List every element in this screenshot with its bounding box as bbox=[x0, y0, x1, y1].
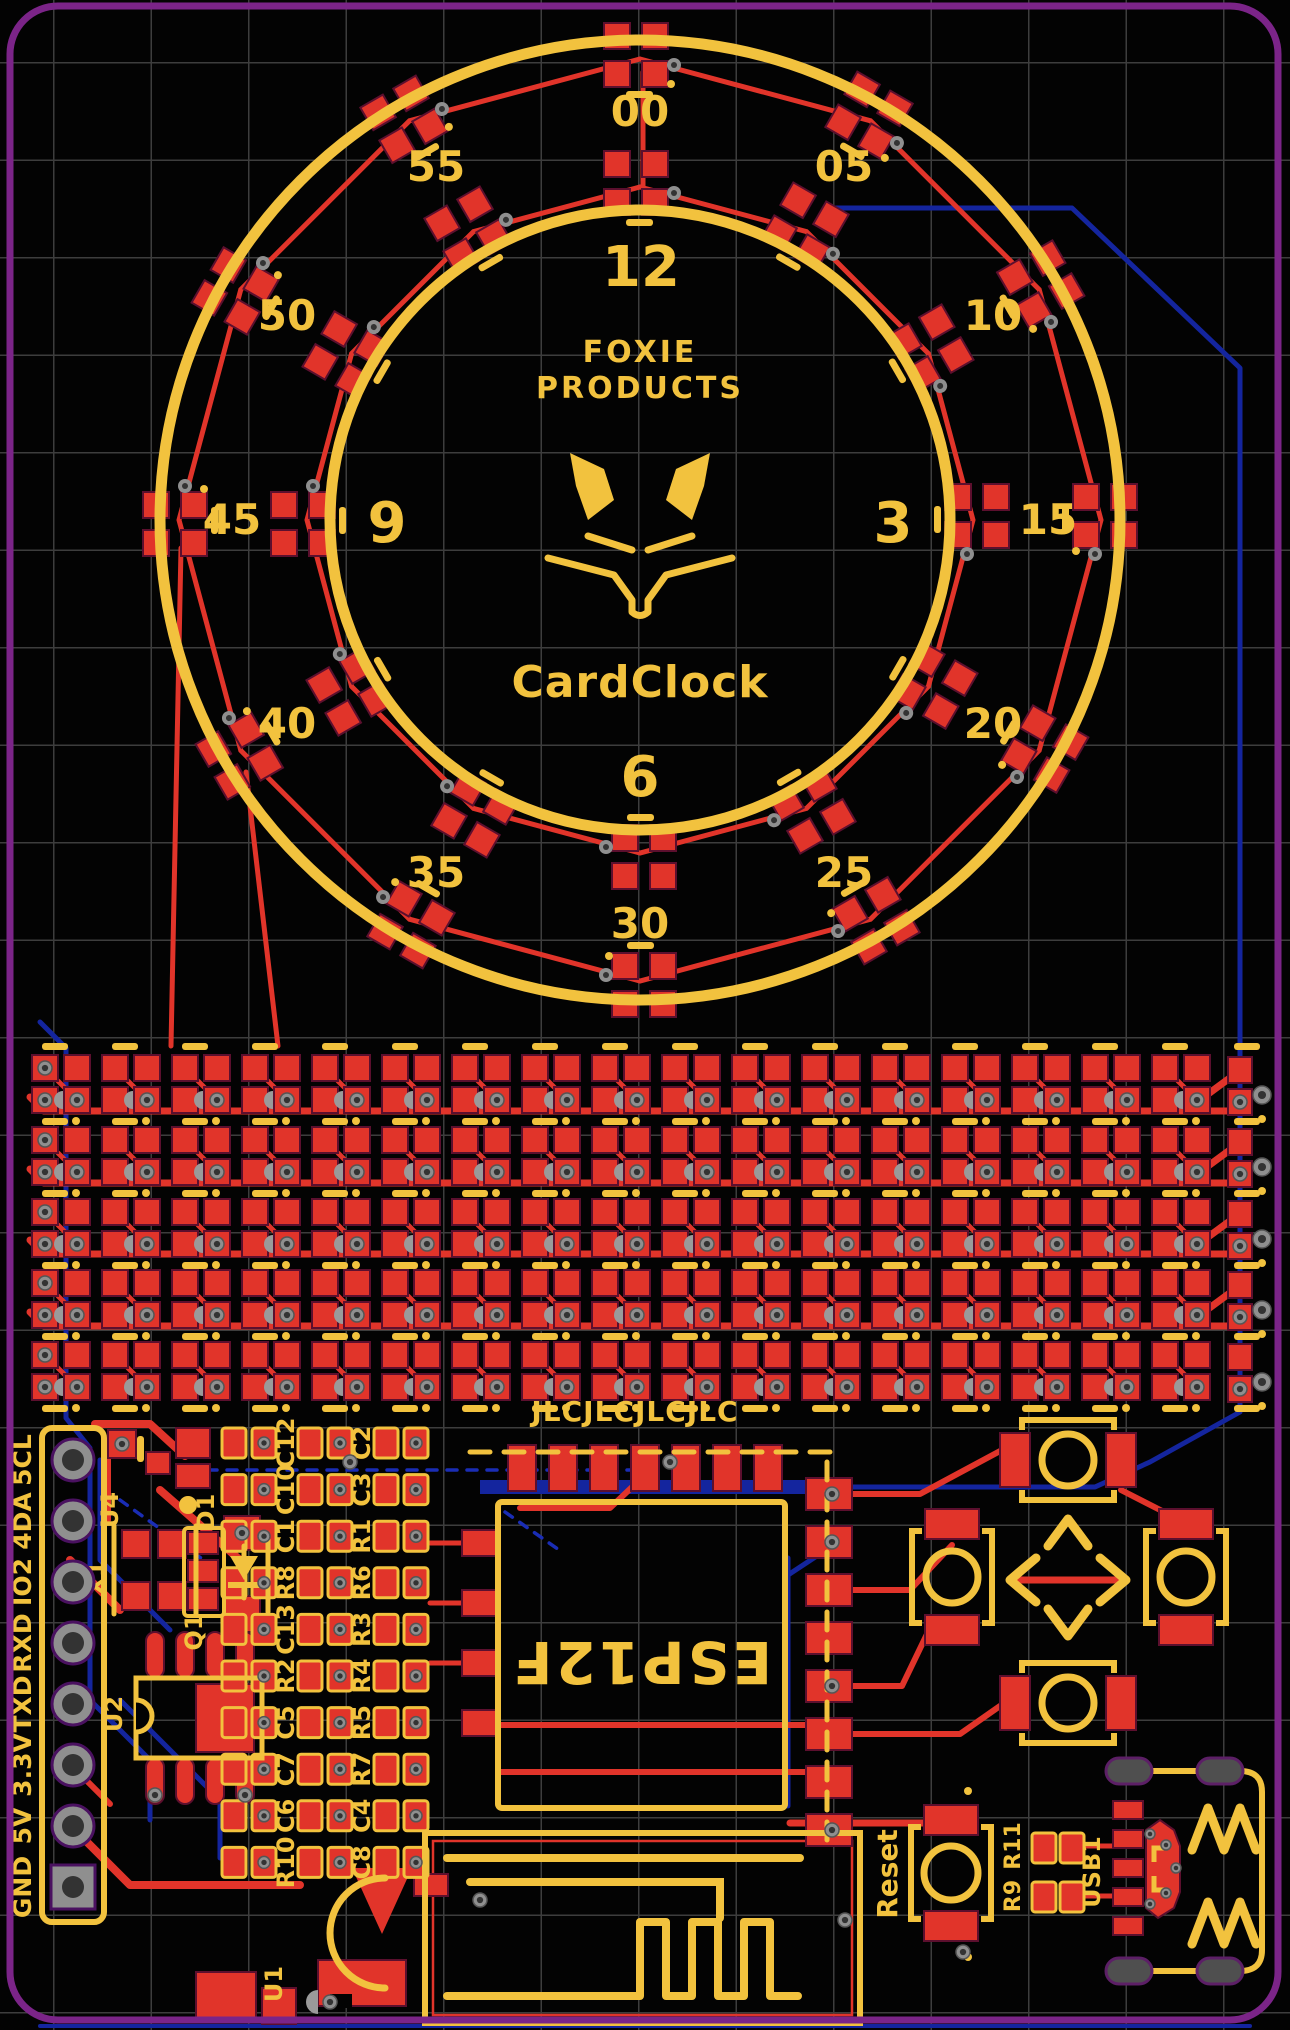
smd-pad bbox=[872, 1127, 898, 1153]
via-hole bbox=[984, 1312, 990, 1318]
smd-pad bbox=[382, 1127, 408, 1153]
usb-pin-pad bbox=[1113, 1917, 1143, 1935]
led-pad bbox=[983, 484, 1009, 510]
smd-pad bbox=[764, 1270, 790, 1296]
silk-dot bbox=[1052, 1117, 1060, 1125]
smd-pad bbox=[158, 1530, 186, 1558]
led-pad bbox=[247, 745, 283, 781]
antenna-line2 bbox=[470, 1882, 720, 1918]
smd-pad bbox=[452, 1342, 478, 1368]
silk-dash bbox=[392, 1262, 418, 1269]
minute-label-15: 15 bbox=[1019, 495, 1077, 544]
smd-pad bbox=[274, 1055, 300, 1081]
smd-pad bbox=[662, 1055, 688, 1081]
smd-pad bbox=[834, 1055, 860, 1081]
minute-label-30: 30 bbox=[611, 899, 669, 948]
silk-dash bbox=[42, 1043, 68, 1050]
smd-pad bbox=[172, 1127, 198, 1153]
via-hole bbox=[337, 1860, 342, 1865]
passive-pad bbox=[222, 1428, 246, 1458]
silk-dash bbox=[462, 1190, 488, 1197]
silk-dash bbox=[882, 1118, 908, 1125]
pcb-canvas: 12 3 6 9 00 05 10 15 20 25 30 35 40 45 5… bbox=[0, 0, 1290, 2030]
silk-dash bbox=[952, 1190, 978, 1197]
via-hole bbox=[829, 1491, 835, 1497]
silk-dash bbox=[112, 1118, 138, 1125]
smd-pad bbox=[1152, 1342, 1178, 1368]
silk-dash bbox=[42, 1405, 68, 1412]
smd-pad bbox=[1184, 1127, 1210, 1153]
via-hole bbox=[261, 1813, 266, 1818]
button-bracket bbox=[1022, 1490, 1114, 1500]
silk-dot bbox=[352, 1189, 360, 1197]
silk-dash bbox=[182, 1333, 208, 1340]
smd-pad bbox=[64, 1342, 90, 1368]
via-hole bbox=[603, 844, 609, 850]
smd-pad bbox=[1228, 1344, 1252, 1370]
led-pad bbox=[650, 863, 676, 889]
via-hole bbox=[347, 1459, 353, 1465]
usb-mount-hole bbox=[1106, 1958, 1152, 1984]
smd-pad bbox=[662, 1342, 688, 1368]
led-pad bbox=[780, 182, 816, 218]
silk-dot bbox=[282, 1332, 290, 1340]
silk-dash bbox=[1092, 1333, 1118, 1340]
led-pad bbox=[325, 700, 361, 736]
via-hole bbox=[1054, 1169, 1060, 1175]
silk-dot bbox=[492, 1189, 500, 1197]
silk-dash bbox=[602, 1190, 628, 1197]
smd-pad bbox=[102, 1270, 128, 1296]
smd-pad bbox=[1228, 1201, 1252, 1227]
passive-label: C12 bbox=[272, 1417, 300, 1468]
silk-dash bbox=[1022, 1043, 1048, 1050]
usb-art-upper bbox=[1192, 1808, 1256, 1850]
silk-dash bbox=[672, 1333, 698, 1340]
silk-dash bbox=[42, 1118, 68, 1125]
silk-dot bbox=[492, 1261, 500, 1269]
smd-pad bbox=[242, 1342, 268, 1368]
smd-pad bbox=[802, 1127, 828, 1153]
smd-pad bbox=[1082, 1270, 1108, 1296]
smd-pad bbox=[382, 1055, 408, 1081]
via-hole bbox=[1237, 1386, 1243, 1392]
passive-pad bbox=[298, 1521, 322, 1551]
silk-dot bbox=[142, 1261, 150, 1269]
silk-dot bbox=[1052, 1404, 1060, 1412]
silk-dot bbox=[422, 1332, 430, 1340]
silk-dash bbox=[392, 1190, 418, 1197]
button-bracket bbox=[1146, 1531, 1156, 1623]
smd-pad bbox=[176, 1428, 210, 1458]
via-hole bbox=[327, 1999, 333, 2005]
smd-pad bbox=[172, 1270, 198, 1296]
passive-pad bbox=[298, 1708, 322, 1738]
smd-pad bbox=[732, 1342, 758, 1368]
silk-dash bbox=[1092, 1262, 1118, 1269]
silk-dash bbox=[322, 1190, 348, 1197]
smd-pad bbox=[904, 1342, 930, 1368]
smd-pad bbox=[1152, 1055, 1178, 1081]
smd-pad bbox=[122, 1582, 150, 1610]
smd-pad bbox=[274, 1342, 300, 1368]
via-hole bbox=[634, 1097, 640, 1103]
smd-pad bbox=[414, 1055, 440, 1081]
smd-pad bbox=[974, 1199, 1000, 1225]
via-hole bbox=[214, 1312, 220, 1318]
smd-pad bbox=[452, 1199, 478, 1225]
silk-dot bbox=[982, 1261, 990, 1269]
via-hole bbox=[310, 483, 316, 489]
header-hole bbox=[62, 1632, 84, 1654]
via-hole bbox=[413, 1813, 418, 1818]
passive-pad bbox=[374, 1568, 398, 1598]
led-pad bbox=[321, 311, 357, 347]
via-hole bbox=[42, 1384, 48, 1390]
passive-label: C13 bbox=[272, 1604, 300, 1655]
smd-pad bbox=[1114, 1127, 1140, 1153]
silk-dot bbox=[72, 1117, 80, 1125]
silk-dash bbox=[112, 1405, 138, 1412]
silk-dash bbox=[812, 1190, 838, 1197]
via-hole bbox=[337, 1440, 342, 1445]
smd-pad bbox=[554, 1342, 580, 1368]
via-hole bbox=[337, 1720, 342, 1725]
silk-dot bbox=[282, 1117, 290, 1125]
button-bracket bbox=[1022, 1733, 1114, 1743]
silk-dot bbox=[212, 1117, 220, 1125]
via-hole bbox=[413, 1487, 418, 1492]
via-hole bbox=[1237, 1243, 1243, 1249]
led-pad bbox=[424, 205, 460, 241]
smd-pad bbox=[904, 1199, 930, 1225]
via-hole bbox=[42, 1137, 48, 1143]
esp-left-pad bbox=[462, 1710, 496, 1736]
via-hole bbox=[1194, 1169, 1200, 1175]
via-hole bbox=[261, 1627, 266, 1632]
silk-dot bbox=[982, 1404, 990, 1412]
usb-mount-hole bbox=[1197, 1958, 1243, 1984]
passive-label: C5 bbox=[272, 1705, 300, 1739]
pcb-layout: 12 3 6 9 00 05 10 15 20 25 30 35 40 45 5… bbox=[0, 0, 1290, 2030]
header-hole bbox=[62, 1876, 84, 1898]
smd-pad bbox=[592, 1270, 618, 1296]
button-cap bbox=[1042, 1677, 1094, 1729]
silk-dot bbox=[912, 1189, 920, 1197]
led-pad bbox=[271, 492, 297, 518]
smd-pad bbox=[764, 1342, 790, 1368]
silk-dot bbox=[702, 1189, 710, 1197]
passive-pad bbox=[374, 1801, 398, 1831]
smd-pad bbox=[872, 1199, 898, 1225]
button-pad bbox=[924, 1911, 978, 1941]
via-hole bbox=[1054, 1241, 1060, 1247]
smd-pad bbox=[662, 1127, 688, 1153]
silk-dash bbox=[322, 1262, 348, 1269]
silk-dash bbox=[182, 1405, 208, 1412]
via-hole bbox=[634, 1169, 640, 1175]
silk-dot bbox=[1052, 1332, 1060, 1340]
minute-label-05: 05 bbox=[815, 142, 873, 191]
usb-mount-hole bbox=[1197, 1758, 1243, 1784]
via-hole bbox=[1194, 1241, 1200, 1247]
smd-pad bbox=[382, 1199, 408, 1225]
via-hole bbox=[477, 1897, 483, 1903]
silk-dash bbox=[602, 1043, 628, 1050]
silk-dash bbox=[1162, 1190, 1188, 1197]
silk-dash bbox=[952, 1262, 978, 1269]
minute-led bbox=[599, 942, 676, 1017]
smd-pad bbox=[624, 1127, 650, 1153]
smd-pad bbox=[64, 1199, 90, 1225]
smd-pad bbox=[942, 1055, 968, 1081]
silk-dash bbox=[742, 1190, 768, 1197]
silk-dash bbox=[339, 507, 346, 534]
via-hole bbox=[1194, 1312, 1200, 1318]
via-hole bbox=[1124, 1097, 1130, 1103]
passive-label: C10 bbox=[272, 1464, 300, 1515]
silk-dot bbox=[562, 1189, 570, 1197]
smd-pad bbox=[204, 1199, 230, 1225]
ref-usb1: USB1 bbox=[1078, 1836, 1106, 1908]
via-hole bbox=[844, 1169, 850, 1175]
via-hole bbox=[284, 1097, 290, 1103]
usb-mount-hole bbox=[1106, 1758, 1152, 1784]
silk-dot bbox=[842, 1117, 850, 1125]
header-hole bbox=[62, 1510, 84, 1532]
passive-pad bbox=[222, 1708, 246, 1738]
via-hole bbox=[424, 1241, 430, 1247]
via-hole bbox=[704, 1169, 710, 1175]
silk-dot bbox=[142, 1117, 150, 1125]
usb-art-lower bbox=[1192, 1902, 1256, 1944]
smd-pad bbox=[764, 1127, 790, 1153]
via-hole bbox=[494, 1169, 500, 1175]
via-hole bbox=[413, 1673, 418, 1678]
passive-pad bbox=[298, 1475, 322, 1505]
smd-pad bbox=[452, 1127, 478, 1153]
button-reset bbox=[911, 1805, 991, 1941]
passive-label: R8 bbox=[272, 1565, 300, 1600]
silk-dash bbox=[602, 1118, 628, 1125]
led-pad bbox=[306, 667, 342, 703]
silk-dash bbox=[1092, 1190, 1118, 1197]
via-hole bbox=[1194, 1097, 1200, 1103]
silk-dash bbox=[934, 506, 941, 533]
button-bracket bbox=[1216, 1531, 1226, 1623]
passive-label: C7 bbox=[272, 1752, 300, 1786]
silk-dot bbox=[632, 1189, 640, 1197]
led-pad bbox=[983, 522, 1009, 548]
via-hole bbox=[844, 1384, 850, 1390]
silk-dash bbox=[42, 1190, 68, 1197]
via-hole bbox=[74, 1312, 80, 1318]
smd-pad bbox=[764, 1199, 790, 1225]
silk-dash bbox=[952, 1405, 978, 1412]
passive-label: C6 bbox=[272, 1799, 300, 1833]
usb-pin-pad bbox=[1113, 1859, 1143, 1877]
smd-pad bbox=[1082, 1055, 1108, 1081]
brand-line1: FOXIE bbox=[583, 335, 698, 370]
silk-dash bbox=[112, 1043, 138, 1050]
silk-dash bbox=[252, 1043, 278, 1050]
silk-dash bbox=[812, 1405, 838, 1412]
silk-dash bbox=[392, 1333, 418, 1340]
silk-dash bbox=[112, 1333, 138, 1340]
silk-dash bbox=[1162, 1043, 1188, 1050]
smd-pad bbox=[242, 1127, 268, 1153]
silk-dash bbox=[1092, 1405, 1118, 1412]
silk-dash bbox=[1022, 1118, 1048, 1125]
via-hole bbox=[214, 1241, 220, 1247]
smd-pad bbox=[196, 1972, 256, 2020]
led-pad bbox=[919, 304, 955, 340]
smd-pad bbox=[414, 1342, 440, 1368]
silk-dot bbox=[1192, 1332, 1200, 1340]
silk-dash bbox=[1234, 1190, 1260, 1197]
via-hole bbox=[354, 1241, 360, 1247]
smd-pad bbox=[102, 1055, 128, 1081]
silk-dot bbox=[352, 1117, 360, 1125]
passive-pad bbox=[298, 1847, 322, 1877]
silk-dash bbox=[532, 1118, 558, 1125]
passive-pad bbox=[298, 1614, 322, 1644]
via-hole bbox=[261, 1534, 266, 1539]
smd-pad bbox=[732, 1270, 758, 1296]
via-hole bbox=[144, 1312, 150, 1318]
button-cap bbox=[1042, 1434, 1094, 1486]
silk-dash bbox=[1022, 1405, 1048, 1412]
via-hole bbox=[152, 1792, 158, 1798]
passive-pad bbox=[222, 1801, 246, 1831]
via-hole bbox=[214, 1384, 220, 1390]
smd-pad bbox=[1082, 1342, 1108, 1368]
smd-pad bbox=[1184, 1342, 1210, 1368]
button-right bbox=[1146, 1509, 1226, 1645]
smd-pad bbox=[452, 1055, 478, 1081]
smd-pad bbox=[484, 1342, 510, 1368]
silk-dash bbox=[626, 219, 653, 226]
via-hole bbox=[413, 1627, 418, 1632]
via-hole bbox=[144, 1384, 150, 1390]
silk-dot bbox=[562, 1332, 570, 1340]
u2-pin bbox=[176, 1758, 194, 1804]
silk-dot bbox=[772, 1117, 780, 1125]
button-bracket bbox=[1022, 1663, 1114, 1673]
smd-pad bbox=[344, 1270, 370, 1296]
silk-dash bbox=[462, 1118, 488, 1125]
led-pad bbox=[612, 953, 638, 979]
via-hole bbox=[774, 1241, 780, 1247]
silk-dot bbox=[72, 1261, 80, 1269]
via-hole bbox=[354, 1097, 360, 1103]
passive-pad bbox=[374, 1614, 398, 1644]
via-hole bbox=[261, 1767, 266, 1772]
silk-dash bbox=[1022, 1333, 1048, 1340]
silk-dot bbox=[422, 1117, 430, 1125]
via-hole bbox=[1237, 1314, 1243, 1320]
silk-dot bbox=[352, 1261, 360, 1269]
via-hole bbox=[704, 1241, 710, 1247]
silk-dash bbox=[42, 1262, 68, 1269]
via-hole bbox=[261, 1860, 266, 1865]
silk-dash bbox=[952, 1118, 978, 1125]
smd-pad bbox=[834, 1127, 860, 1153]
button-pad bbox=[1159, 1615, 1213, 1645]
silk-dot bbox=[772, 1189, 780, 1197]
button-bracket bbox=[982, 1531, 992, 1623]
via-hole bbox=[564, 1312, 570, 1318]
via-hole bbox=[564, 1169, 570, 1175]
smd-pad bbox=[382, 1270, 408, 1296]
smd-pad bbox=[158, 1582, 186, 1610]
smd-pad bbox=[764, 1055, 790, 1081]
silk-dot bbox=[1052, 1261, 1060, 1269]
passive-pad bbox=[298, 1568, 322, 1598]
smd-pad bbox=[204, 1270, 230, 1296]
passive-label: R4 bbox=[348, 1658, 376, 1693]
via-hole bbox=[42, 1209, 48, 1215]
via-hole bbox=[634, 1312, 640, 1318]
smd-pad bbox=[694, 1270, 720, 1296]
smd-pad bbox=[484, 1055, 510, 1081]
smd-pad bbox=[904, 1127, 930, 1153]
smd-pad bbox=[732, 1199, 758, 1225]
minute-label-35: 35 bbox=[407, 848, 465, 897]
silk-dash bbox=[627, 814, 654, 821]
led-pad bbox=[938, 337, 974, 373]
silk-dash bbox=[882, 1405, 908, 1412]
silk-dot bbox=[212, 1189, 220, 1197]
silk-dash bbox=[1022, 1190, 1048, 1197]
via-hole bbox=[914, 1097, 920, 1103]
via-hole bbox=[284, 1241, 290, 1247]
smd-pad bbox=[204, 1127, 230, 1153]
button-pad bbox=[1000, 1433, 1030, 1487]
silk-dot bbox=[1122, 1261, 1130, 1269]
via-hole bbox=[704, 1097, 710, 1103]
smd-pad bbox=[1082, 1127, 1108, 1153]
smd-pad bbox=[1082, 1199, 1108, 1225]
via-hole bbox=[214, 1169, 220, 1175]
brand-line2: PRODUCTS bbox=[536, 371, 744, 406]
smd-pad bbox=[1012, 1270, 1038, 1296]
minute-label-55: 55 bbox=[407, 142, 465, 191]
via-hole bbox=[74, 1169, 80, 1175]
silk-dash bbox=[1022, 1262, 1048, 1269]
silk-dash bbox=[812, 1118, 838, 1125]
smd-pad bbox=[134, 1270, 160, 1296]
silk-dash bbox=[532, 1333, 558, 1340]
via-hole bbox=[1237, 1099, 1243, 1105]
via-hole bbox=[337, 1534, 342, 1539]
via-hole bbox=[494, 1241, 500, 1247]
header-hole bbox=[62, 1815, 84, 1837]
via-hole bbox=[119, 1441, 125, 1447]
silk-dash bbox=[462, 1262, 488, 1269]
via-hole bbox=[603, 972, 609, 978]
smd-pad bbox=[1114, 1199, 1140, 1225]
button-pad bbox=[1159, 1509, 1213, 1539]
smd-pad bbox=[554, 1055, 580, 1081]
silk-dash bbox=[1092, 1118, 1118, 1125]
smd-pad bbox=[522, 1270, 548, 1296]
silk-dash bbox=[137, 1436, 144, 1462]
passive-pad bbox=[374, 1847, 398, 1877]
silk-dash bbox=[322, 1333, 348, 1340]
silk-dot bbox=[282, 1189, 290, 1197]
minute-label-00: 00 bbox=[611, 87, 669, 136]
